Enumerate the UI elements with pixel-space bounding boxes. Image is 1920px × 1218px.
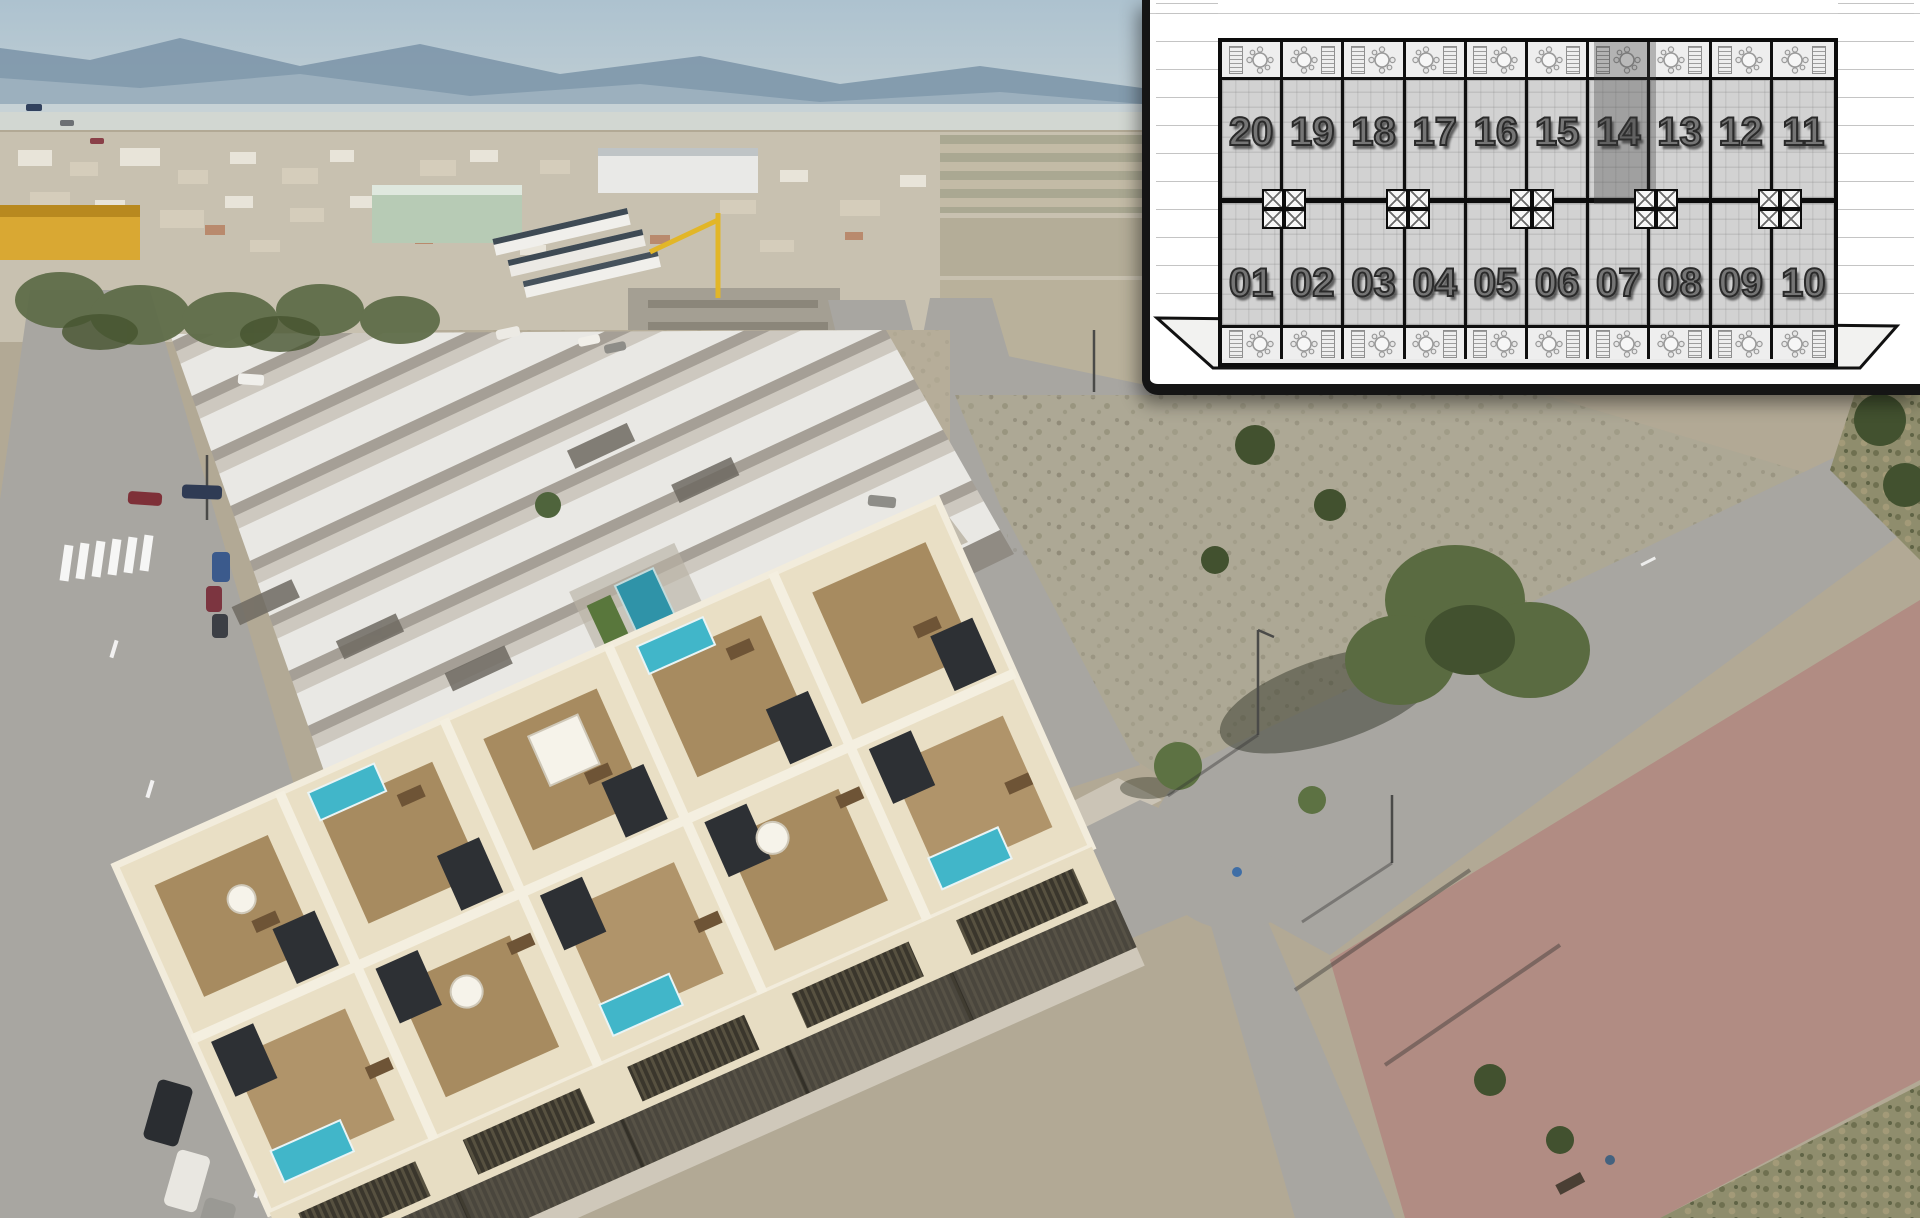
round-table-icon xyxy=(1781,46,1809,74)
round-table-icon xyxy=(1246,330,1274,358)
round-table-icon xyxy=(1368,330,1396,358)
terrace-05 xyxy=(1467,328,1528,359)
plan-unit-15: 15 xyxy=(1528,80,1589,198)
unit-number: 19 xyxy=(1290,112,1335,198)
stairs-icon xyxy=(1321,46,1335,74)
round-table-icon xyxy=(1412,330,1440,358)
stairs-icon xyxy=(1351,330,1365,358)
round-table-icon xyxy=(1490,46,1518,74)
stairs-icon xyxy=(1473,46,1487,74)
unit-number: 10 xyxy=(1781,263,1826,325)
round-table-icon xyxy=(1535,46,1563,74)
terrace-20 xyxy=(1222,42,1283,77)
unit-number: 06 xyxy=(1535,263,1580,325)
unit-number: 20 xyxy=(1229,112,1274,198)
stairs-icon xyxy=(1596,46,1610,74)
stair-core-20-19 xyxy=(1262,189,1306,229)
round-table-icon xyxy=(1290,46,1318,74)
round-table-icon xyxy=(1368,46,1396,74)
stairs-icon xyxy=(1688,46,1702,74)
plan-building: 20 19 18 17 16 15 14 13 12 11 01 02 03 0… xyxy=(1218,38,1838,367)
round-table-icon xyxy=(1657,46,1685,74)
terrace-07 xyxy=(1589,328,1650,359)
unit-number: 18 xyxy=(1351,112,1396,198)
stairs-icon xyxy=(1321,330,1335,358)
stairs-icon xyxy=(1718,46,1732,74)
unit-number: 04 xyxy=(1412,263,1457,325)
terrace-18 xyxy=(1344,42,1405,77)
unit-number: 05 xyxy=(1474,263,1519,325)
plan-unit-14: 14 xyxy=(1589,80,1650,198)
stairs-icon xyxy=(1596,330,1610,358)
terrace-row-bottom xyxy=(1222,325,1834,359)
plan-unit-18: 18 xyxy=(1344,80,1405,198)
real-estate-aerial-composite: 20 19 18 17 16 15 14 13 12 11 01 02 03 0… xyxy=(0,0,1920,1218)
round-table-icon xyxy=(1613,330,1641,358)
unit-number: 02 xyxy=(1290,263,1335,325)
terrace-02 xyxy=(1283,328,1344,359)
warehouse-green-roof xyxy=(372,185,522,243)
terrace-10 xyxy=(1773,328,1834,359)
terrace-16 xyxy=(1467,42,1528,77)
plan-unit-20: 20 xyxy=(1222,80,1283,198)
stair-core-16-15 xyxy=(1510,189,1554,229)
terrace-09 xyxy=(1712,328,1773,359)
yellow-building xyxy=(0,205,140,260)
terrace-row-top xyxy=(1222,42,1834,80)
unit-number: 14 xyxy=(1596,112,1641,198)
round-table-icon xyxy=(1412,46,1440,74)
plan-unit-19: 19 xyxy=(1283,80,1344,198)
unit-number: 12 xyxy=(1718,112,1763,198)
unit-row-upper: 20 19 18 17 16 15 14 13 12 11 xyxy=(1222,80,1834,203)
unit-number: 07 xyxy=(1596,263,1641,325)
round-table-icon xyxy=(1490,330,1518,358)
unit-number: 09 xyxy=(1718,263,1763,325)
terrace-04 xyxy=(1406,328,1467,359)
round-table-icon xyxy=(1290,330,1318,358)
stair-core-12-11 xyxy=(1758,189,1802,229)
stairs-icon xyxy=(1351,46,1365,74)
stair-core-14-13 xyxy=(1634,189,1678,229)
plan-unit-11: 11 xyxy=(1773,80,1834,198)
plan-unit-12: 12 xyxy=(1712,80,1773,198)
stairs-icon xyxy=(1566,46,1580,74)
round-table-icon xyxy=(1657,330,1685,358)
unit-number: 17 xyxy=(1412,112,1457,198)
terrace-14 xyxy=(1589,42,1650,77)
pedestrian xyxy=(1232,867,1242,877)
stairs-icon xyxy=(1566,330,1580,358)
terrace-01 xyxy=(1222,328,1283,359)
stairs-icon xyxy=(1473,330,1487,358)
plan-unit-16: 16 xyxy=(1467,80,1528,198)
terrace-03 xyxy=(1344,328,1405,359)
unit-number: 08 xyxy=(1657,263,1702,325)
stairs-icon xyxy=(1229,330,1243,358)
terrace-19 xyxy=(1283,42,1344,77)
unit-number: 11 xyxy=(1782,112,1824,198)
stairs-icon xyxy=(1812,46,1826,74)
unit-number: 16 xyxy=(1474,112,1519,198)
round-table-icon xyxy=(1246,46,1274,74)
palm-tree xyxy=(535,492,561,518)
round-table-icon xyxy=(1735,46,1763,74)
terrace-17 xyxy=(1406,42,1467,77)
terrace-08 xyxy=(1650,328,1711,359)
stairs-icon xyxy=(1688,330,1702,358)
stair-core-18-17 xyxy=(1386,189,1430,229)
terrace-13 xyxy=(1650,42,1711,77)
terrace-12 xyxy=(1712,42,1773,77)
stairs-icon xyxy=(1812,330,1826,358)
unit-number: 13 xyxy=(1657,112,1702,198)
terrace-06 xyxy=(1528,328,1589,359)
round-table-icon xyxy=(1535,330,1563,358)
round-table-icon xyxy=(1735,330,1763,358)
site-plan-inset: 20 19 18 17 16 15 14 13 12 11 01 02 03 0… xyxy=(1142,0,1920,395)
round-table-icon xyxy=(1781,330,1809,358)
round-table-icon xyxy=(1613,46,1641,74)
unit-number: 15 xyxy=(1535,112,1580,198)
terrace-15 xyxy=(1528,42,1589,77)
site-plan-canvas: 20 19 18 17 16 15 14 13 12 11 01 02 03 0… xyxy=(1150,0,1920,384)
plan-unit-13: 13 xyxy=(1650,80,1711,198)
unit-number: 01 xyxy=(1229,263,1274,325)
stairs-icon xyxy=(1443,46,1457,74)
plan-unit-17: 17 xyxy=(1406,80,1467,198)
terrace-11 xyxy=(1773,42,1834,77)
stairs-icon xyxy=(1443,330,1457,358)
stairs-icon xyxy=(1229,46,1243,74)
stairs-icon xyxy=(1718,330,1732,358)
unit-number: 03 xyxy=(1351,263,1396,325)
